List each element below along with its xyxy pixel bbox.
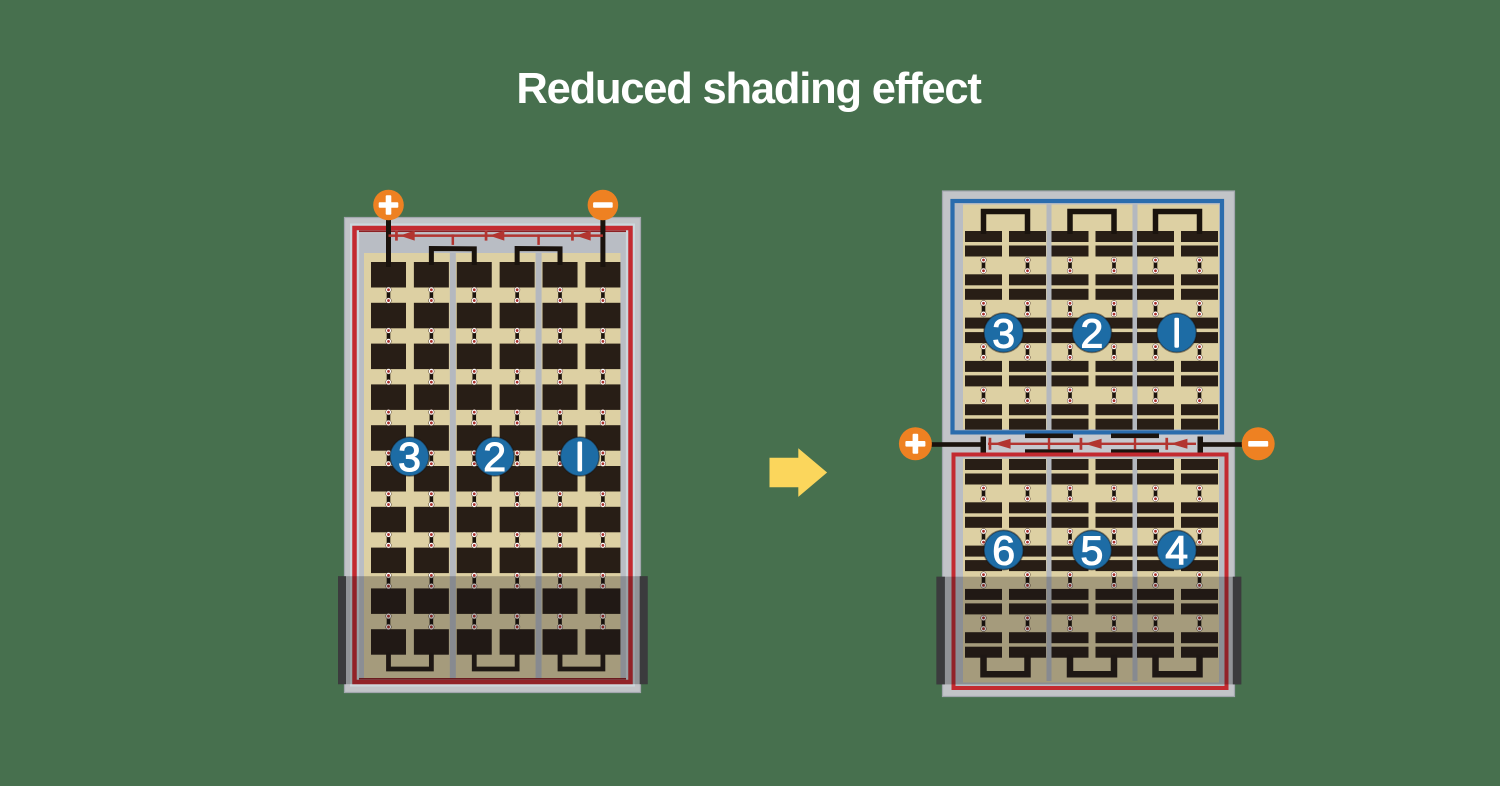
svg-text:3: 3 [398, 434, 421, 480]
svg-text:2: 2 [483, 434, 506, 480]
svg-text:2: 2 [1080, 310, 1103, 356]
svg-text:4: 4 [1165, 528, 1188, 574]
svg-text:Reduced shading effect: Reduced shading effect [516, 65, 981, 113]
svg-text:5: 5 [1080, 528, 1103, 574]
svg-text:6: 6 [992, 528, 1015, 574]
svg-text:3: 3 [992, 310, 1015, 356]
